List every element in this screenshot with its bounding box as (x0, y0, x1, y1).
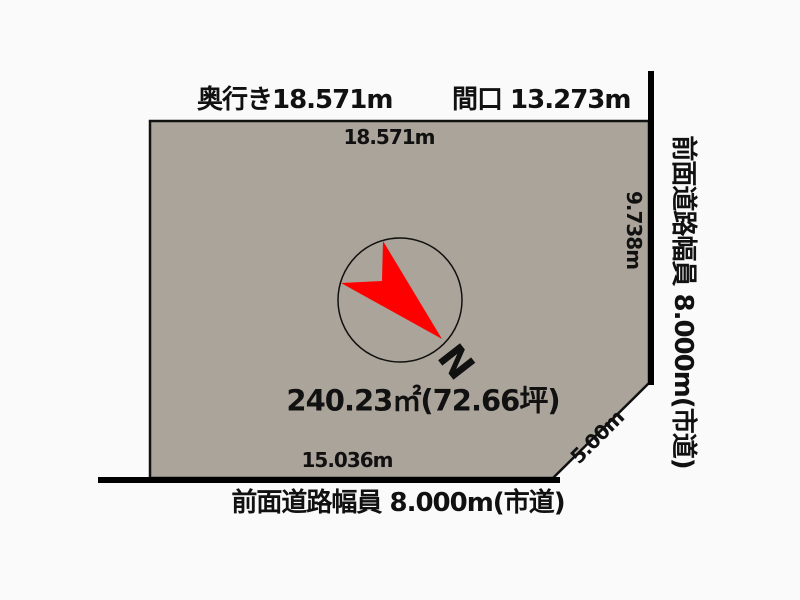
depth-label: 奥行き18.571m (197, 87, 392, 113)
bottom-edge-dimension: 15.036m (301, 450, 392, 470)
land-plot-diagram: 奥行き18.571m 間口 13.273m 18.571m 9.738m 15.… (0, 0, 800, 600)
area-label: 240.23㎡(72.66坪) (286, 387, 559, 416)
bottom-road-label: 前面道路幅員 8.000m(市道) (231, 490, 564, 516)
right-edge-dimension: 9.738m (624, 191, 644, 269)
top-edge-dimension: 18.571m (343, 127, 434, 147)
right-road-label: 前面道路幅員 8.000m(市道) (670, 135, 696, 468)
frontage-label: 間口 13.273m (452, 87, 630, 113)
